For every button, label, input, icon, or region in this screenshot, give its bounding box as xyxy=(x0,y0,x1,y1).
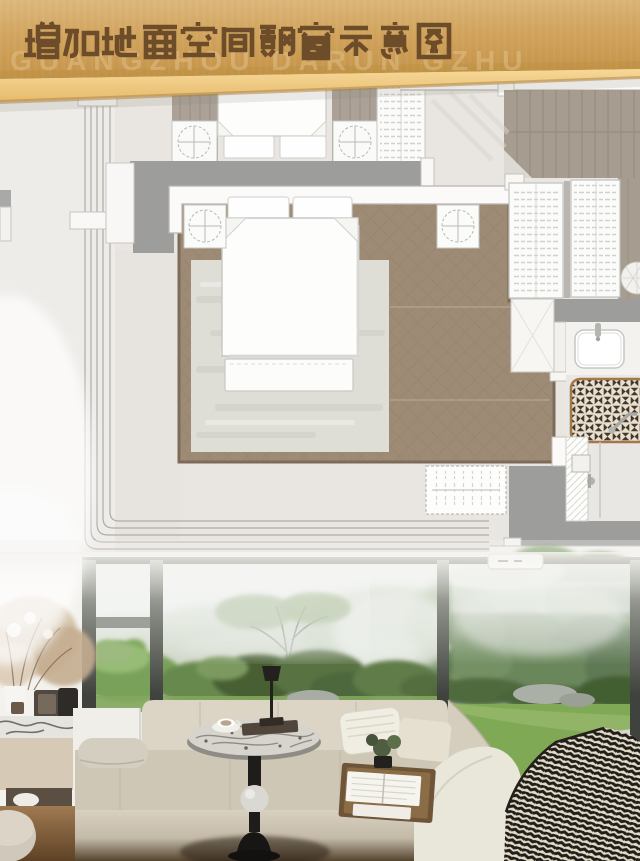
svg-text:GUANGZHOU DARUN GZHU: GUANGZHOU DARUN GZHU xyxy=(10,45,530,76)
